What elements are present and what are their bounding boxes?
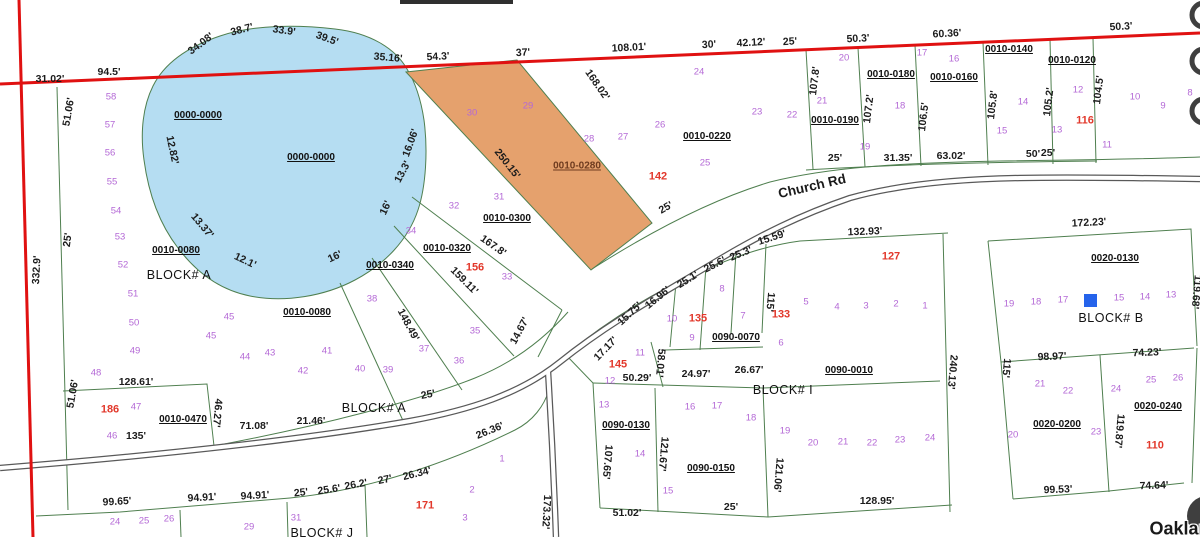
lot-number: 32 <box>449 201 460 211</box>
highlight-number: 142 <box>649 172 667 183</box>
lot-number: 20 <box>1008 430 1019 440</box>
dimension-label: 168.02' <box>583 68 611 102</box>
parcel-id: 0090-0010 <box>825 366 873 376</box>
parcel-id: 0010-0220 <box>683 132 731 142</box>
lot-number: 17 <box>1058 295 1069 305</box>
dimension-label: 30' <box>702 39 717 50</box>
lot-number: 1 <box>922 301 927 311</box>
lot-number: 37 <box>419 344 430 354</box>
lot-number: 35 <box>470 326 481 336</box>
dimension-label: 16' <box>378 199 394 216</box>
lot-number: 46 <box>107 431 118 441</box>
dimension-label: 74.64' <box>1139 480 1168 491</box>
block-label: BLOCK# B <box>1078 312 1143 325</box>
parcel-id: 0020-0240 <box>1134 402 1182 412</box>
highlight-number: 186 <box>101 405 119 416</box>
lot-number: 12 <box>605 376 616 386</box>
dimension-label: 128.95' <box>860 496 895 507</box>
lot-number: 26 <box>164 514 175 524</box>
dimension-label: 54.3' <box>426 51 449 63</box>
dimension-label: 33.9' <box>272 24 296 38</box>
dimension-label: 108.01' <box>611 42 646 54</box>
lot-number: 24 <box>694 67 705 77</box>
dimension-label: 94.91' <box>240 490 269 502</box>
lot-number: 22 <box>1063 386 1074 396</box>
dimension-label: 94.91' <box>187 492 216 504</box>
dimension-label: 25.1' <box>675 269 700 290</box>
lot-number: 8 <box>719 284 724 294</box>
parcel-id: 0090-0150 <box>687 464 735 474</box>
dimension-label: 38.7' <box>230 22 255 38</box>
lot-number: 13 <box>599 400 610 410</box>
dimension-label: 115' <box>1000 358 1012 378</box>
map-labels-layer: 31.02'94.5'34.08'38.7'33.9'39.5'35.16'54… <box>0 0 1200 537</box>
dimension-label: 105.2' <box>1042 87 1056 117</box>
dimension-label: 106.5' <box>917 102 931 132</box>
dimension-label: 119.68' <box>1189 275 1200 310</box>
lot-number: 43 <box>265 348 276 358</box>
lot-number: 14 <box>635 449 646 459</box>
lot-number: 19 <box>1004 299 1015 309</box>
dimension-label: 107.2' <box>862 94 876 124</box>
lot-number: 20 <box>808 438 819 448</box>
dimension-label: 50' <box>1026 149 1040 160</box>
dimension-label: 25' <box>1041 148 1055 159</box>
lot-number: 16 <box>949 54 960 64</box>
parcel-id: 0010-0080 <box>283 308 331 318</box>
lot-number: 30 <box>467 108 478 118</box>
parcel-id: 0000-0000 <box>174 111 222 121</box>
parcel-id: 0010-0160 <box>930 73 978 83</box>
watermark-text: Oakland <box>1149 519 1200 537</box>
dimension-label: 25' <box>62 232 74 248</box>
lot-number: 54 <box>111 206 122 216</box>
lot-number: 9 <box>1160 101 1165 111</box>
lot-number: 13 <box>1166 290 1177 300</box>
lot-number: 28 <box>584 134 595 144</box>
lot-number: 19 <box>780 426 791 436</box>
dimension-label: 250.15' <box>492 147 522 181</box>
lot-number: 53 <box>115 232 126 242</box>
lot-number: 41 <box>322 346 333 356</box>
lot-number: 17 <box>712 401 723 411</box>
dimension-label: 135' <box>126 431 146 442</box>
dimension-label: 99.53' <box>1043 484 1072 495</box>
highlight-number: 110 <box>1146 441 1164 452</box>
dimension-label: 39.5' <box>314 30 339 48</box>
lot-number: 12 <box>1073 85 1084 95</box>
highlight-number: 133 <box>772 310 790 321</box>
dimension-label: 31.35' <box>884 153 913 164</box>
dimension-label: 14.67' <box>509 316 532 346</box>
lot-number: 25 <box>139 516 150 526</box>
lot-number: 23 <box>752 107 763 117</box>
dimension-label: 13.3' <box>393 159 413 184</box>
lot-number: 23 <box>1091 427 1102 437</box>
dimension-label: 16.06' <box>401 128 421 159</box>
lot-number: 44 <box>240 352 251 362</box>
lot-number: 23 <box>895 435 906 445</box>
dimension-label: 240.13' <box>945 354 958 389</box>
lot-number: 1 <box>499 454 504 464</box>
parcel-id: 0010-0320 <box>423 244 471 254</box>
dimension-label: 46.27' <box>211 398 224 428</box>
lot-number: 22 <box>867 438 878 448</box>
dimension-label: 16' <box>326 249 343 265</box>
lot-number: 18 <box>1031 297 1042 307</box>
dimension-label: 167.8' <box>478 233 508 258</box>
dimension-label: 26.36' <box>475 421 506 442</box>
dimension-label: 173.32' <box>540 494 552 529</box>
lot-number: 21 <box>817 96 828 106</box>
dimension-label: 25' <box>828 153 842 164</box>
dimension-label: 128.61' <box>119 377 154 388</box>
lot-number: 9 <box>689 333 694 343</box>
lot-number: 40 <box>355 364 366 374</box>
dimension-label: 51.06' <box>61 97 76 127</box>
lot-number: 49 <box>130 346 141 356</box>
dimension-label: 31.02' <box>36 74 65 85</box>
lot-number: 7 <box>740 311 745 321</box>
dimension-label: 24.97' <box>682 369 711 380</box>
dimension-label: 27' <box>377 473 393 486</box>
lot-number: 29 <box>244 522 255 532</box>
lot-number: 47 <box>131 402 142 412</box>
dimension-label: 12.82' <box>164 135 180 165</box>
lot-number: 45 <box>224 312 235 322</box>
lot-number: 57 <box>105 120 116 130</box>
dimension-label: 34.08' <box>186 31 215 57</box>
lot-number: 26 <box>655 120 666 130</box>
lot-number: 24 <box>925 433 936 443</box>
parcel-id: 0010-0120 <box>1048 56 1096 66</box>
parcel-id: 0010-0080 <box>152 246 200 256</box>
lot-number: 24 <box>110 517 121 527</box>
parcel-id: 0020-0200 <box>1033 420 1081 430</box>
dimension-label: 50.29' <box>623 373 652 384</box>
dimension-label: 26.67' <box>735 365 764 376</box>
lot-number: 45 <box>206 331 217 341</box>
dimension-label: 25' <box>724 502 738 513</box>
lot-number: 38 <box>367 294 378 304</box>
lot-number: 14 <box>1018 97 1029 107</box>
dimension-label: 74.23' <box>1132 347 1161 358</box>
parcel-id: 0010-0300 <box>483 214 531 224</box>
dimension-label: 148.49' <box>395 307 421 343</box>
lot-number: 13 <box>1052 125 1063 135</box>
lot-number: 19 <box>860 142 871 152</box>
lot-number: 15 <box>663 486 674 496</box>
lot-number: 10 <box>667 314 678 324</box>
lot-number: 33 <box>502 272 513 282</box>
dimension-label: 35.16' <box>373 52 403 65</box>
dimension-label: 98.97' <box>1037 351 1066 362</box>
dimension-label: 26.2' <box>344 478 368 492</box>
dimension-label: 107.65' <box>600 444 613 479</box>
lot-number: 18 <box>895 101 906 111</box>
dimension-label: 25' <box>783 36 798 47</box>
lot-number: 11 <box>1102 140 1112 150</box>
dimension-label: 15.75' <box>616 300 644 327</box>
lot-number: 50 <box>129 318 140 328</box>
highlight-number: 171 <box>416 501 434 512</box>
lot-number: 24 <box>1111 384 1122 394</box>
lot-number: 36 <box>454 356 465 366</box>
parcel-id: 0010-0340 <box>366 261 414 271</box>
lot-number: 34 <box>406 226 417 236</box>
dimension-label: 51.06' <box>65 379 80 409</box>
dimension-label: 132.93' <box>848 226 883 238</box>
highlight-number: 135 <box>689 314 707 325</box>
parcel-id: 0010-0180 <box>867 70 915 80</box>
lot-number: 42 <box>298 366 309 376</box>
dimension-label: 25.6' <box>702 255 727 275</box>
parcel-id: 0090-0130 <box>602 421 650 431</box>
dimension-label: 58.01' <box>654 348 667 378</box>
parcel-id: 0000-0000 <box>287 153 335 163</box>
lot-number: 8 <box>1187 88 1192 98</box>
lot-number: 27 <box>618 132 629 142</box>
parcel-id: 0010-0470 <box>159 415 207 425</box>
lot-number: 22 <box>787 110 798 120</box>
lot-number: 26 <box>1173 373 1184 383</box>
dimension-label: 107.8' <box>808 66 822 96</box>
highlight-number: 127 <box>882 252 900 263</box>
dimension-label: 13.37' <box>189 212 216 241</box>
lot-number: 18 <box>746 413 757 423</box>
lot-number: 11 <box>635 348 645 358</box>
block-label: BLOCK# I <box>753 384 813 397</box>
lot-number: 51 <box>128 289 139 299</box>
highlight-number: 156 <box>466 263 484 274</box>
dimension-label: 104.5' <box>1092 75 1106 105</box>
lot-number: 4 <box>834 302 839 312</box>
dimension-label: 25.3' <box>728 245 753 263</box>
lot-number: 56 <box>105 148 116 158</box>
highlight-number: 145 <box>609 360 627 371</box>
lot-number: 58 <box>106 92 117 102</box>
dimension-label: 25' <box>657 200 675 216</box>
parcel-id: 0020-0130 <box>1091 254 1139 264</box>
dimension-label: 332.9' <box>31 255 43 284</box>
lot-number: 31 <box>494 192 505 202</box>
dimension-label: 121.67' <box>656 436 669 471</box>
dimension-label: 119.87' <box>1112 414 1125 449</box>
lot-number: 5 <box>803 297 808 307</box>
dimension-label: 26.34' <box>402 465 432 482</box>
lot-number: 20 <box>839 53 850 63</box>
lot-number: 55 <box>107 177 118 187</box>
lot-number: 6 <box>778 338 783 348</box>
lot-number: 17 <box>917 48 928 58</box>
selected-parcel-id-label: 0010-0280 <box>553 161 601 172</box>
lot-number: 31 <box>291 513 302 523</box>
highlight-number: 116 <box>1076 116 1094 127</box>
map-canvas[interactable]: 31.02'94.5'34.08'38.7'33.9'39.5'35.16'54… <box>0 0 1200 537</box>
dimension-label: 94.5' <box>98 67 121 78</box>
dimension-label: 15.59' <box>757 229 788 248</box>
parcel-id: 0010-0140 <box>985 45 1033 55</box>
lot-number: 2 <box>469 485 474 495</box>
lot-number: 3 <box>863 301 868 311</box>
lot-number: 21 <box>838 437 849 447</box>
lot-number: 3 <box>462 513 467 523</box>
dimension-label: 25' <box>420 389 436 402</box>
lot-number: 15 <box>997 126 1008 136</box>
parcel-id: 0010-0190 <box>811 116 859 126</box>
dimension-label: 71.08' <box>240 421 269 432</box>
dimension-label: 121.06' <box>771 457 784 492</box>
dimension-label: 50.3' <box>1109 21 1132 33</box>
block-label: BLOCK# A <box>342 402 406 415</box>
dimension-label: 25.6' <box>317 483 341 497</box>
lot-number: 25 <box>700 158 711 168</box>
dimension-label: 51.02' <box>613 508 642 519</box>
lot-number: 16 <box>685 402 696 412</box>
parcel-id: 0090-0070 <box>712 333 760 343</box>
block-label: BLOCK# A <box>147 269 211 282</box>
dimension-label: 50.3' <box>846 33 869 45</box>
dimension-label: 37' <box>516 47 531 58</box>
lot-number: 29 <box>523 101 534 111</box>
lot-number: 21 <box>1035 379 1046 389</box>
dimension-label: 12.1' <box>232 251 257 270</box>
lot-number: 2 <box>893 299 898 309</box>
block-label: BLOCK# J <box>290 527 353 537</box>
lot-number: 14 <box>1140 292 1151 302</box>
dimension-label: 99.65' <box>102 496 131 508</box>
dimension-label: 63.02' <box>937 151 966 162</box>
dimension-label: 42.12' <box>736 37 765 49</box>
dimension-label: 16.96' <box>644 285 673 311</box>
lot-number: 48 <box>91 368 102 378</box>
lot-number: 39 <box>383 365 394 375</box>
lot-number: 25 <box>1146 375 1157 385</box>
lot-number: 15 <box>1114 293 1125 303</box>
dimension-label: 25' <box>293 487 308 499</box>
dimension-label: 105.8' <box>986 90 1000 120</box>
dimension-label: 172.23' <box>1071 217 1106 229</box>
lot-number: 10 <box>1130 92 1141 102</box>
dimension-label: 21.46' <box>297 416 326 427</box>
dimension-label: 60.36' <box>932 28 961 40</box>
lot-number: 52 <box>118 260 129 270</box>
